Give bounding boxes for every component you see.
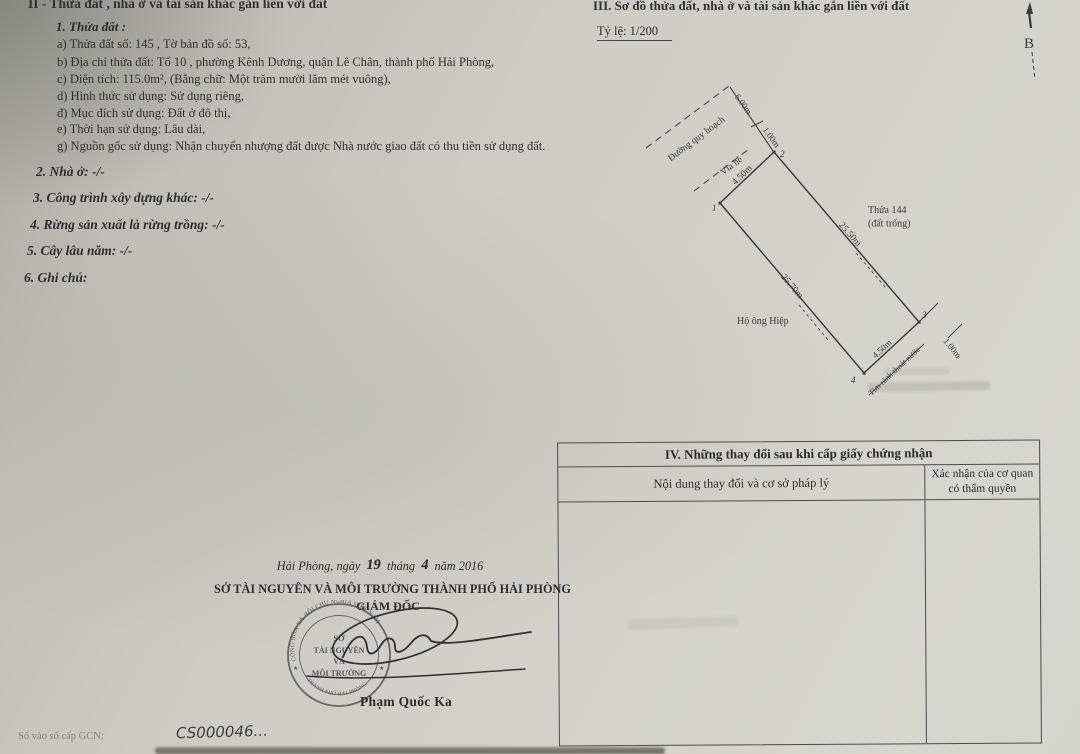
svg-text:★: ★ <box>379 665 384 672</box>
changes-table-body <box>558 500 1040 746</box>
corner-point-2 <box>773 151 776 154</box>
item-notes: 6. Ghi chú: <box>24 270 87 286</box>
dim-front: 4.50m <box>730 163 755 187</box>
road-label: Đường quy hoạch <box>667 115 728 164</box>
date-suffix: năm 2016 <box>434 559 483 573</box>
registry-number-label: Số vào sổ cấp GCN: <box>18 731 104 742</box>
dim-road-width: 6.00m <box>733 92 754 116</box>
section3-title: III. Sơ đồ thửa đất, nhà ở và tài sản kh… <box>593 0 909 14</box>
changes-table-cell-right <box>925 500 1040 744</box>
handwritten-month: 4 <box>420 557 430 574</box>
drain-label: Tim rãnh thoát nước <box>867 345 922 397</box>
corner-label-2: 2 <box>780 149 785 159</box>
agency-name: SỞ TÀI NGUYÊN VÀ MÔI TRƯỜNG THÀNH PHỐ HẢ… <box>214 582 562 597</box>
dim-drain-width: 1.00m <box>941 336 963 360</box>
col-change-content: Nội dung thay đổi và cơ sở pháp lý <box>558 465 925 501</box>
stamp-line-3: VÀ <box>333 656 345 666</box>
corner-label-1: 1 <box>712 203 717 213</box>
item-house: 2. Nhà ở: -/- <box>36 164 105 180</box>
plot-item-d: d) Hình thức sử dụng: Sử dụng riêng, <box>57 89 244 104</box>
changes-table-title: IV. Những thay đổi sau khi cấp giấy chứn… <box>558 441 1039 468</box>
ink-bleed-artifact <box>884 368 950 375</box>
handwritten-day: 19 <box>365 557 382 574</box>
corner-label-3: 3 <box>921 310 927 320</box>
plot-item-a: a) Thửa đất số: 145 , Tờ bản đồ số: 53, <box>57 37 250 52</box>
changes-table-cell-left <box>558 500 926 745</box>
signer-role: GIÁM ĐỐC <box>214 599 562 614</box>
neighbor-household-label: Hộ ông Hiệp <box>737 316 789 327</box>
dim-right: 25.50m <box>836 221 863 250</box>
corner-point-3 <box>918 321 921 324</box>
date-line: Hải Phòng, ngày 19 tháng 4 năm 2016 <box>258 558 502 575</box>
date-middle: tháng <box>387 559 415 573</box>
sidewalk-label: Vỉa hè <box>719 155 745 178</box>
item-forest: 4. Rừng sản xuất là rừng trồng: -/- <box>30 217 225 233</box>
corner-point-4 <box>863 372 866 375</box>
dim-tick <box>751 121 763 127</box>
plot-item-b: b) Địa chỉ thửa đất: Tổ 10 , phường Kênh… <box>57 55 494 70</box>
item-perennial: 5. Cây lâu năm: -/- <box>27 243 132 259</box>
road-dim-line <box>730 87 773 151</box>
plot-boundary <box>720 152 919 373</box>
plot-item-g: g) Nguồn gốc sử dụng: Nhận chuyển nhượng… <box>57 139 545 154</box>
section2-title: II - Thửa đất , nhà ở và tài sản khác gắ… <box>28 0 327 12</box>
plot-diagram: B Đường quy hoạch Vỉa hè 6.00m 1.00m 1 2… <box>600 0 1080 430</box>
scan-edge-artifact <box>155 747 665 754</box>
signer-name: Phạm Quốc Ka <box>360 694 452 710</box>
road-edge-line <box>646 86 729 148</box>
north-label: B <box>1024 36 1034 52</box>
dim-sidewalk: 1.00m <box>761 125 782 149</box>
neighbor-plot-label: Thửa 144 <box>868 205 906 216</box>
col-authority-confirm: Xác nhận của cơ quan có thẩm quyền <box>925 465 1039 500</box>
date-prefix: Hải Phòng, ngày <box>277 559 361 573</box>
stamp-line-1: SỞ <box>333 633 345 643</box>
corner-label-4: 4 <box>851 375 856 385</box>
map-scale: Tỷ lệ: 1/200 <box>597 24 672 41</box>
changes-table-header: Nội dung thay đổi và cơ sở pháp lý Xác n… <box>558 465 1039 503</box>
drain-tick-2 <box>948 324 962 338</box>
north-arrow-icon: B <box>1024 2 1035 80</box>
registry-number-value: CS000046... <box>176 722 268 743</box>
dim-right-leader <box>856 253 886 288</box>
svg-text:★: ★ <box>293 665 298 672</box>
corner-point-1 <box>719 202 722 205</box>
stamp-line-2: TÀI NGUYÊN <box>314 645 365 655</box>
drain-tick-1 <box>920 303 938 321</box>
stamp-line-4: MÔI TRƯỜNG <box>312 668 366 678</box>
dim-back: 4.50m <box>870 337 893 360</box>
signature-scribble-icon <box>295 603 545 693</box>
sidewalk-edge-line <box>694 149 749 191</box>
drain-line <box>869 344 924 395</box>
plot-heading: 1. Thửa đất : <box>56 19 126 35</box>
changes-table: IV. Những thay đổi sau khi cấp giấy chứn… <box>557 440 1042 747</box>
item-constructions: 3. Công trình xây dựng khác: -/- <box>33 190 214 206</box>
neighbor-plot-note: (đất trống) <box>868 219 911 230</box>
dim-left-leader <box>799 305 828 340</box>
ink-bleed-artifact <box>868 381 990 392</box>
plot-item-dd: đ) Mục đích sử dụng: Đất ở đô thị, <box>57 106 230 121</box>
plot-item-e: e) Thời hạn sử dụng: Lâu dài, <box>57 122 205 137</box>
plot-item-c: c) Diện tích: 115.0m², (Bằng chữ: Một tr… <box>57 72 391 87</box>
dim-left: 25.70m <box>778 272 805 301</box>
